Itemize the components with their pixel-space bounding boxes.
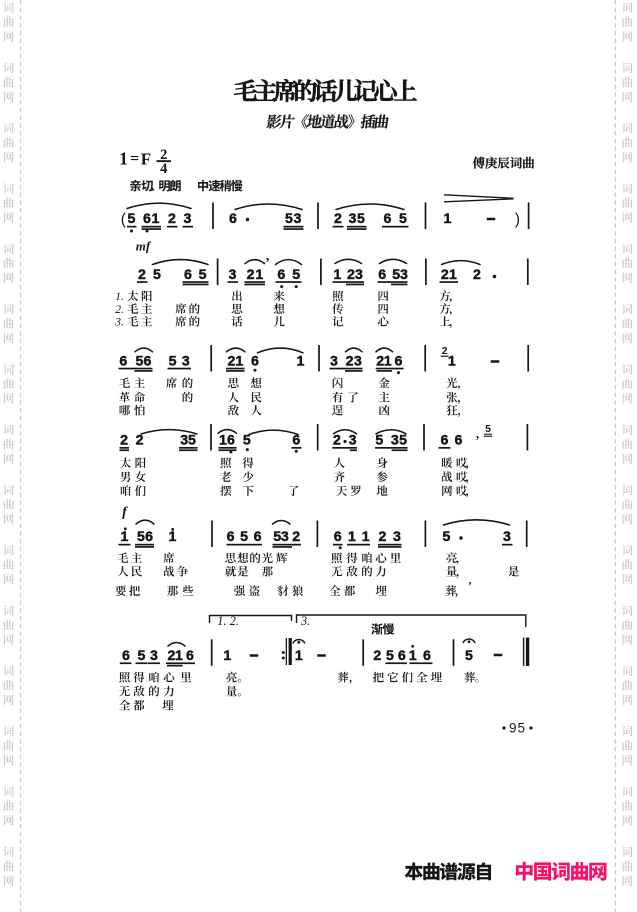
svg-text:3: 3 bbox=[281, 529, 289, 545]
svg-text:5: 5 bbox=[128, 211, 136, 227]
svg-text:2: 2 bbox=[292, 529, 300, 545]
svg-text:2: 2 bbox=[373, 648, 381, 664]
svg-text:1: 1 bbox=[223, 648, 231, 664]
svg-text:=: = bbox=[130, 151, 139, 168]
svg-text:3: 3 bbox=[184, 211, 192, 227]
svg-text:5: 5 bbox=[199, 267, 207, 283]
svg-text:1: 1 bbox=[295, 648, 303, 664]
svg-text:5: 5 bbox=[138, 648, 146, 664]
svg-text:6: 6 bbox=[143, 211, 151, 227]
svg-text:6: 6 bbox=[145, 529, 153, 545]
svg-text:2: 2 bbox=[347, 267, 355, 283]
svg-text:5: 5 bbox=[240, 529, 248, 545]
svg-text:1: 1 bbox=[219, 433, 227, 449]
svg-text:5: 5 bbox=[137, 529, 145, 545]
svg-text:2: 2 bbox=[168, 211, 176, 227]
svg-text:1: 1 bbox=[297, 354, 305, 370]
svg-text:2: 2 bbox=[346, 354, 354, 370]
svg-text:1: 1 bbox=[362, 529, 370, 545]
svg-text:1: 1 bbox=[449, 267, 457, 283]
svg-text:1. 2.: 1. 2. bbox=[217, 614, 239, 628]
svg-text:5: 5 bbox=[399, 433, 407, 449]
svg-text:3: 3 bbox=[349, 211, 357, 227]
svg-text:5: 5 bbox=[443, 529, 451, 545]
svg-text:6: 6 bbox=[378, 267, 386, 283]
svg-text:2: 2 bbox=[379, 529, 387, 545]
svg-text:): ) bbox=[515, 211, 520, 228]
svg-text:5: 5 bbox=[188, 433, 196, 449]
svg-text:1: 1 bbox=[152, 211, 160, 227]
svg-text:2: 2 bbox=[120, 433, 128, 449]
svg-text:2: 2 bbox=[227, 354, 235, 370]
svg-text:3: 3 bbox=[349, 433, 357, 449]
svg-text:3: 3 bbox=[391, 433, 399, 449]
svg-text:1: 1 bbox=[235, 354, 243, 370]
svg-text:3: 3 bbox=[150, 648, 158, 664]
svg-text:3: 3 bbox=[294, 211, 302, 227]
svg-text:2: 2 bbox=[473, 267, 481, 283]
svg-text:5: 5 bbox=[386, 648, 394, 664]
svg-text:6: 6 bbox=[441, 433, 449, 449]
svg-text:1: 1 bbox=[444, 211, 452, 227]
svg-text:2: 2 bbox=[138, 267, 146, 283]
svg-text:3: 3 bbox=[393, 529, 401, 545]
svg-text:3: 3 bbox=[400, 267, 408, 283]
svg-text:6: 6 bbox=[334, 529, 342, 545]
svg-text:1: 1 bbox=[348, 529, 356, 545]
svg-text:6: 6 bbox=[122, 648, 130, 664]
svg-text:3: 3 bbox=[503, 529, 511, 545]
svg-text:1: 1 bbox=[119, 149, 128, 169]
svg-text:2: 2 bbox=[247, 267, 255, 283]
svg-text:6: 6 bbox=[455, 433, 463, 449]
svg-text:5: 5 bbox=[465, 648, 473, 664]
svg-text:3: 3 bbox=[228, 267, 236, 283]
svg-text:6: 6 bbox=[227, 529, 235, 545]
svg-text:6: 6 bbox=[384, 211, 392, 227]
svg-text:5: 5 bbox=[292, 267, 300, 283]
svg-text:5: 5 bbox=[285, 211, 293, 227]
svg-text:1: 1 bbox=[409, 648, 417, 664]
svg-text:1: 1 bbox=[448, 354, 456, 370]
svg-text:6: 6 bbox=[398, 648, 406, 664]
svg-text:2: 2 bbox=[333, 433, 341, 449]
svg-text:6: 6 bbox=[277, 267, 285, 283]
svg-text:1: 1 bbox=[384, 354, 392, 370]
svg-text:5: 5 bbox=[153, 267, 161, 283]
svg-text:5: 5 bbox=[135, 354, 143, 370]
svg-text:5: 5 bbox=[357, 211, 365, 227]
svg-text:3: 3 bbox=[354, 354, 362, 370]
svg-text:1: 1 bbox=[121, 529, 129, 545]
svg-text:6: 6 bbox=[119, 354, 127, 370]
svg-text:6: 6 bbox=[254, 529, 262, 545]
svg-text:6: 6 bbox=[184, 267, 192, 283]
svg-text:2.: 2. bbox=[115, 304, 124, 316]
svg-text:5: 5 bbox=[485, 423, 491, 435]
svg-text:6: 6 bbox=[423, 648, 431, 664]
svg-text:’: ’ bbox=[468, 581, 472, 593]
svg-text:2: 2 bbox=[441, 267, 449, 283]
svg-text:6: 6 bbox=[227, 433, 235, 449]
svg-text:6: 6 bbox=[229, 211, 237, 227]
svg-text:5: 5 bbox=[399, 211, 407, 227]
svg-text:’: ’ bbox=[265, 256, 270, 271]
svg-text:F: F bbox=[141, 150, 151, 169]
svg-text:3: 3 bbox=[182, 354, 190, 370]
svg-text:1.: 1. bbox=[115, 291, 124, 303]
svg-text:5: 5 bbox=[392, 267, 400, 283]
svg-text:3: 3 bbox=[355, 267, 363, 283]
svg-text:6: 6 bbox=[395, 354, 403, 370]
svg-text:5: 5 bbox=[169, 354, 177, 370]
svg-text:1: 1 bbox=[333, 267, 341, 283]
svg-text:1: 1 bbox=[169, 529, 177, 545]
svg-text:3.: 3. bbox=[300, 614, 310, 628]
svg-text:1: 1 bbox=[175, 648, 183, 664]
svg-text:5: 5 bbox=[375, 433, 383, 449]
svg-text:6: 6 bbox=[292, 433, 300, 449]
svg-text:4: 4 bbox=[160, 161, 167, 177]
svg-text:6: 6 bbox=[186, 648, 194, 664]
svg-text:2: 2 bbox=[136, 433, 144, 449]
svg-text:3.: 3. bbox=[114, 317, 124, 329]
svg-text:6: 6 bbox=[143, 354, 151, 370]
svg-text:3: 3 bbox=[330, 354, 338, 370]
svg-text:1: 1 bbox=[255, 267, 263, 283]
svg-text:95: 95 bbox=[509, 721, 526, 736]
svg-text:6: 6 bbox=[251, 354, 259, 370]
svg-text:mf: mf bbox=[136, 239, 152, 254]
svg-text:(: ( bbox=[121, 211, 127, 228]
svg-text:2: 2 bbox=[334, 211, 342, 227]
svg-text:’: ’ bbox=[475, 434, 479, 448]
